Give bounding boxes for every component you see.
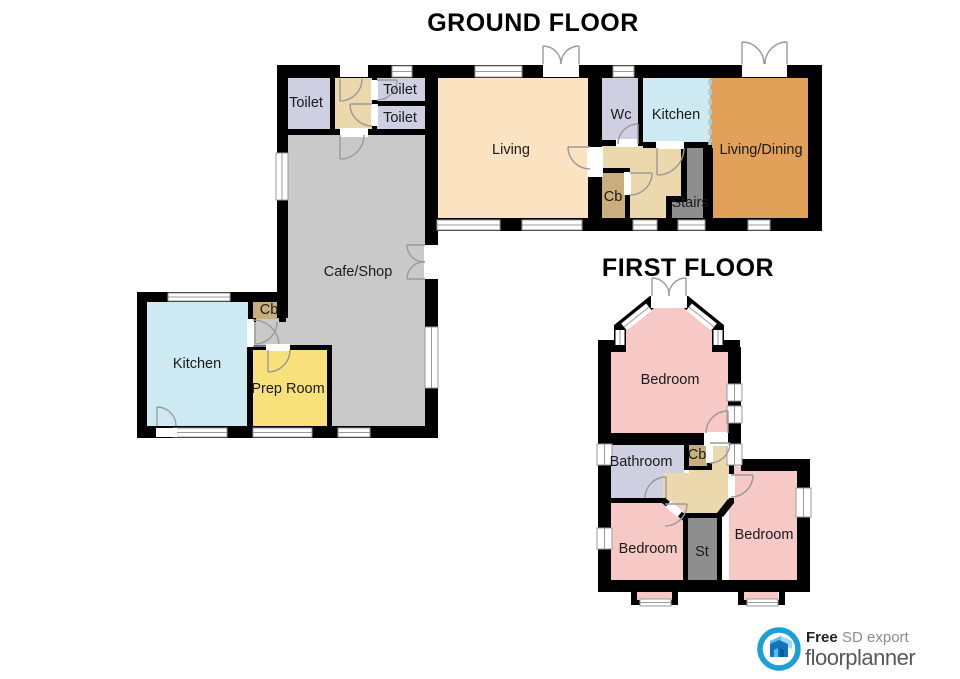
room-label-toilet-mid: Toilet (383, 110, 417, 126)
floorplan-export-page: Toilet Toilet Toilet Living Wc Kitchen L… (0, 0, 960, 679)
logo-brand-label: floorplanner (805, 645, 915, 670)
room-label-toilet-left: Toilet (289, 95, 323, 111)
room-label-wc: Wc (611, 107, 632, 123)
room-label-bedroom-left: Bedroom (619, 541, 678, 557)
window (522, 220, 582, 230)
ground-floor-title: GROUND FLOOR (427, 9, 639, 37)
window (173, 428, 227, 437)
logo-sd-export-label: SD export (842, 629, 910, 646)
room-label-toilet-top: Toilet (383, 82, 417, 98)
room-label-cb-first: Cb (688, 447, 707, 463)
window (747, 599, 778, 606)
floorplanner-logo: Free SD export floorplanner (760, 629, 915, 670)
room-label-stairs: Stairs (671, 195, 708, 211)
window (727, 406, 742, 423)
room-label-living-dining: Living/Dining (719, 142, 802, 158)
window (437, 220, 500, 230)
room-label-bedroom-top: Bedroom (641, 372, 700, 388)
window (392, 66, 412, 77)
window (640, 599, 671, 606)
room-label-st: St (695, 544, 709, 560)
logo-free-label: Free (806, 629, 838, 646)
room-label-cb-hall: Cb (604, 189, 623, 205)
room-label-cafe-shop: Cafe/Shop (324, 264, 393, 280)
room-label-living: Living (492, 142, 530, 158)
double-door (543, 46, 579, 77)
window (253, 428, 312, 437)
floor-plan-canvas: Toilet Toilet Toilet Living Wc Kitchen L… (0, 0, 960, 679)
window (727, 384, 742, 401)
window (613, 66, 634, 77)
window (338, 428, 370, 437)
window (796, 488, 811, 517)
window (748, 220, 770, 230)
room-bedroom-top (611, 347, 728, 445)
double-door (651, 278, 687, 308)
room-label-kitchen-right: Kitchen (652, 107, 700, 123)
window (425, 327, 438, 388)
window (633, 220, 657, 230)
room-bedroom-right (729, 462, 797, 580)
window (597, 528, 612, 549)
room-label-kitchen-annex: Kitchen (173, 356, 221, 372)
window (475, 66, 522, 77)
room-label-cb-annex: Cb (260, 302, 279, 318)
double-door (742, 42, 787, 77)
room-label-bedroom-right: Bedroom (735, 527, 794, 543)
first-floor-plan: Bedroom Bathroom Cb Bedroom St Bedroom (597, 278, 811, 606)
room-label-bathroom: Bathroom (610, 454, 673, 470)
window (678, 220, 705, 230)
first-floor-title: FIRST FLOOR (602, 254, 774, 282)
window (276, 153, 288, 200)
room-entry-hall (332, 70, 376, 134)
room-label-prep-room: Prep Room (251, 381, 324, 397)
window (168, 293, 230, 301)
